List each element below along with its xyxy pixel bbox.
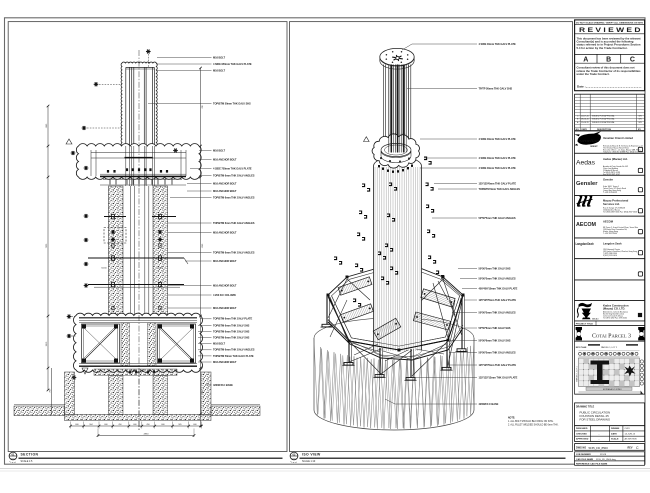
svg-text:FOR STEEL DRAWING: FOR STEEL DRAWING <box>580 418 611 422</box>
svg-text:1. ALL BOLT SHOULD BE FIXING O: 1. ALL BOLT SHOULD BE FIXING ON SITE. <box>508 420 554 423</box>
svg-text:APPROVED: APPROVED <box>576 438 589 441</box>
svg-text:4 SIDE 40mm THK GALV PLATE: 4 SIDE 40mm THK GALV PLATE <box>479 156 517 160</box>
svg-text:C: C <box>636 446 639 450</box>
svg-text:50x50: 50x50 <box>101 268 107 270</box>
svg-text:T +852 3922 9000: T +852 3922 9000 <box>603 233 617 235</box>
svg-text:TOP/BTM 6mm THK GALV SHS: TOP/BTM 6mm THK GALV SHS <box>213 336 250 340</box>
svg-text:2. ALL FILLET WELDED SHOULD BE: 2. ALL FILLET WELDED SHOULD BE 6mm THK. <box>508 424 559 427</box>
svg-text:TP/TP 50mm THK GALV SHS: TP/TP 50mm THK GALV SHS <box>479 86 513 90</box>
svg-text:AECOM: AECOM <box>603 220 614 224</box>
svg-text:5502: 5502 <box>292 458 298 460</box>
svg-text:15-06-15: 15-06-15 <box>581 122 589 124</box>
svg-text:TOP/BTM 6mm THK GALV SHS: TOP/BTM 6mm THK GALV SHS <box>213 329 250 333</box>
svg-text:Gensler: Gensler <box>576 181 598 187</box>
svg-text:10-07-15: 10-07-15 <box>581 116 589 118</box>
svg-text:50*50*6mm THK GALV SHS: 50*50*6mm THK GALV SHS <box>479 338 511 342</box>
svg-text:TOP/BTM 6mm THK GALV ANGLES: TOP/BTM 6mm THK GALV ANGLES <box>213 221 255 225</box>
svg-text:5.4 for action by the Trade Co: 5.4 for action by the Trade Contractor. <box>577 47 628 50</box>
svg-text:under the Trade Contract.: under the Trade Contract. <box>577 73 610 76</box>
svg-text:TOP/BTM 50mm THK GALV PLATE: TOP/BTM 50mm THK GALV PLATE <box>213 354 254 358</box>
svg-text:4 SIDE 40mm THK GALV PLATE: 4 SIDE 40mm THK GALV PLATE <box>479 166 517 170</box>
svg-text:LangdonSeah: LangdonSeah <box>576 242 594 246</box>
svg-text:ESTRADA DO ISTMO: ESTRADA DO ISTMO <box>603 388 622 391</box>
svg-text:600: 600 <box>193 424 196 426</box>
svg-text:ISSUED FOR APPROVAL: ISSUED FOR APPROVAL <box>592 115 615 118</box>
svg-text:TOP/BTM 50mm THK GALV SHS: TOP/BTM 50mm THK GALV SHS <box>213 101 251 105</box>
svg-text:964: 964 <box>89 424 92 426</box>
svg-text:DESIGNED: DESIGNED <box>576 428 588 430</box>
svg-text:4 203 R.C COLUMN: 4 203 R.C COLUMN <box>213 293 236 297</box>
svg-text:(Macau) CO. LTD.: (Macau) CO. LTD. <box>603 307 625 311</box>
svg-text:PROJECT TITLE: PROJECT TITLE <box>576 324 594 326</box>
svg-text:Aedas (Macau) Ltd.: Aedas (Macau) Ltd. <box>603 157 628 161</box>
svg-text:4 SIDE 950mm THK GALV PLATE: 4 SIDE 950mm THK GALV PLATE <box>213 62 252 66</box>
svg-text:Tel: 2875 3282 Fax: 2875 326: Tel: 2875 3282 Fax: 2875 3262 <box>603 318 627 320</box>
svg-text:ISSUED FOR APPROVAL: ISSUED FOR APPROVAL <box>592 118 615 121</box>
svg-text:DO NOT SCALE DRAWING. VERIFY A: DO NOT SCALE DRAWING. VERIFY ALL DIMENSI… <box>576 21 644 24</box>
svg-text:SCALE 1:5: SCALE 1:5 <box>21 460 33 463</box>
svg-text:PARCEL 1, LOT 1: PARCEL 1, LOT 1 <box>576 366 579 381</box>
svg-text:600: 600 <box>133 424 136 426</box>
svg-text:C: C <box>630 57 635 64</box>
svg-text:KEY PLAN: KEY PLAN <box>576 346 587 349</box>
svg-text:relieve the Trade Contractor o: relieve the Trade Contractor of its resp… <box>577 70 642 73</box>
svg-text:450: 450 <box>146 424 149 426</box>
svg-text:MACAU: MACAU <box>592 317 599 320</box>
svg-text:50*50*6mm THK GALV SHS: 50*50*6mm THK GALV SHS <box>479 326 511 330</box>
svg-text:2850: 2850 <box>144 433 150 435</box>
svg-text:600: 600 <box>75 424 78 426</box>
svg-text:SECTION: SECTION <box>21 452 39 456</box>
svg-text:50*50*5mm THK GALV SHS: 50*50*5mm THK GALV SHS <box>479 266 511 270</box>
svg-text:This document has been reviewe: This document has been reviewed by the r… <box>577 37 641 40</box>
svg-text:Consultant review of this docu: Consultant review of this document does … <box>577 67 635 70</box>
svg-text:CAD FILE NAME: CAD FILE NAME <box>576 458 594 461</box>
svg-text:DATE: DATE <box>611 432 617 435</box>
svg-text:AS SHOWN: AS SHOWN <box>625 438 637 441</box>
svg-text:REV: REV <box>628 447 633 450</box>
svg-text:M16 ANCHOR BOLT: M16 ANCHOR BOLT <box>213 306 237 310</box>
svg-text:M16 BOLT: M16 BOLT <box>213 148 225 152</box>
svg-text:965: 965 <box>178 424 181 426</box>
svg-text:M16 BOLT: M16 BOLT <box>213 342 225 346</box>
svg-text:4200Ø R.C BASE: 4200Ø R.C BASE <box>479 402 499 406</box>
svg-text:M16 ANCHOR BOLT: M16 ANCHOR BOLT <box>213 181 237 185</box>
svg-text:125*125*6mm THK GALV PLATE: 125*125*6mm THK GALV PLATE <box>479 298 517 302</box>
svg-text:50*50*5mm THK GALV ANGLES: 50*50*5mm THK GALV ANGLES <box>479 216 516 220</box>
svg-text:F (852) 2576 0416: F (852) 2576 0416 <box>603 255 617 257</box>
svg-text:TOP/BTM 6mm THK GALV ANGLES: TOP/BTM 6mm THK GALV ANGLES <box>213 250 255 254</box>
svg-text:4 SIDE 40mm THK GALV PLATE: 4 SIDE 40mm THK GALV PLATE <box>479 137 517 141</box>
svg-text:125*125*6mm THK GALV PLATE: 125*125*6mm THK GALV PLATE <box>479 181 517 185</box>
svg-text:50*50*5mm THK GALV ANGLES: 50*50*5mm THK GALV ANGLES <box>479 350 516 354</box>
svg-text:CHECKED: CHECKED <box>576 433 587 435</box>
svg-text:A: A <box>583 57 588 64</box>
svg-text:ORIENT: ORIENT <box>590 146 598 148</box>
svg-text:132*132*12mm THK GALV PLATE: 132*132*12mm THK GALV PLATE <box>479 375 518 379</box>
svg-text:28-06-15: 28-06-15 <box>581 119 589 121</box>
svg-text:TOP/BTM 6mm THK GALV PLATE: TOP/BTM 6mm THK GALV PLATE <box>213 317 252 321</box>
svg-text:NOTE:: NOTE: <box>508 418 515 420</box>
svg-text:125*125*6mm THK GALV PLATE: 125*125*6mm THK GALV PLATE <box>479 363 517 367</box>
svg-text:M16 ANCHOR BOLT: M16 ANCHOR BOLT <box>213 189 237 193</box>
svg-text:Fax (853) 2871 6107: Fax (853) 2871 6107 <box>603 174 620 176</box>
svg-text:M16 ANCHOR BOLT: M16 ANCHOR BOLT <box>213 259 237 263</box>
svg-text:Langdon Seah: Langdon Seah <box>603 241 622 245</box>
svg-text:TOP/BTM 6mm THK GALV ANGLES: TOP/BTM 6mm THK GALV ANGLES <box>479 187 521 191</box>
svg-text:DRAWING TITLE: DRAWING TITLE <box>576 405 595 408</box>
svg-text:ISO VIEW: ISO VIEW <box>302 452 321 456</box>
svg-text:4 SIDE 40mm THK GALV PLATE: 4 SIDE 40mm THK GALV PLATE <box>479 42 517 46</box>
svg-text:status referred to in Projec: status referred to in Project Procedures… <box>577 44 642 47</box>
svg-text:TOP/BTM 6mm THK GALV SHS: TOP/BTM 6mm THK GALV SHS <box>213 323 250 327</box>
svg-text:M16 ANCHOR BOLT: M16 ANCHOR BOLT <box>213 157 237 161</box>
svg-text:REFERENCE CAD FILE NAME: REFERENCE CAD FILE NAME <box>576 462 608 465</box>
svg-text:M16 BOLT: M16 BOLT <box>213 68 225 72</box>
svg-text:PARCEL 1, LOT 2: PARCEL 1, LOT 2 <box>601 346 618 349</box>
svg-text:R E V I E W E D: R E V I E W E D <box>579 27 641 34</box>
svg-text:CWO: CWO <box>625 428 631 430</box>
svg-text:AECOM: AECOM <box>576 222 596 228</box>
svg-text:DWG NO: DWG NO <box>576 447 586 450</box>
svg-text:50*50*5mm THK GALV ANGLES: 50*50*5mm THK GALV ANGLES <box>479 310 516 314</box>
svg-text:14-JUN-15: 14-JUN-15 <box>625 433 636 435</box>
svg-text:50x50: 50x50 <box>157 268 163 270</box>
svg-text:ISSUED FOR APPROVAL: ISSUED FOR APPROVAL <box>592 121 615 124</box>
svg-text:TOP/BTM 6mm THK GALV ANGLES: TOP/BTM 6mm THK GALV ANGLES <box>213 195 255 199</box>
svg-text:T +852.2576.8555: T +852.2576.8555 <box>603 192 617 194</box>
svg-text:4 SIDE 750mm THK GALV PLATE: 4 SIDE 750mm THK GALV PLATE <box>213 166 252 170</box>
svg-text:B: B <box>606 57 611 64</box>
svg-text:M16 BOLT: M16 BOLT <box>213 55 225 59</box>
svg-text:Tel: (853) 2837 5656 Fax: (8: Tel: (853) 2837 5656 Fax: (853) 2837 562… <box>603 212 637 214</box>
svg-text:Aedas: Aedas <box>576 159 595 166</box>
svg-text:Date :: Date : <box>577 84 586 88</box>
svg-text:Consultant(s) and is accorded: Consultant(s) and is accorded the follow… <box>577 41 635 44</box>
svg-text:venetian: venetian <box>580 138 600 143</box>
svg-text:4200Ø R.C BASE: 4200Ø R.C BASE <box>213 383 233 387</box>
svg-text:M16 ANCHOR BOLT: M16 ANCHOR BOLT <box>213 283 237 287</box>
svg-text:SCALE 1:10: SCALE 1:10 <box>302 460 316 463</box>
svg-text:400*400*10mm THK GALV PLATE: 400*400*10mm THK GALV PLATE <box>479 286 518 290</box>
svg-text:5502: 5502 <box>11 458 17 460</box>
svg-text:SCALE: SCALE <box>611 438 619 441</box>
svg-text:600: 600 <box>104 424 107 426</box>
svg-text:Services Ltd.: Services Ltd. <box>603 202 620 206</box>
svg-text:Venetian Orient Limited: Venetian Orient Limited <box>603 136 633 140</box>
svg-text:600: 600 <box>161 424 164 426</box>
svg-text:TOP/BTM 6mm THK GALV ANGLES: TOP/BTM 6mm THK GALV ANGLES <box>213 348 255 352</box>
svg-text:5155_FD_8500.dwg: 5155_FD_8500.dwg <box>596 459 616 461</box>
svg-text:50*50*5mm THK GALV ANGLES: 50*50*5mm THK GALV ANGLES <box>479 276 516 280</box>
svg-text:M16 ANCHOR BOLT: M16 ANCHOR BOLT <box>213 360 237 364</box>
svg-text:Telephone: (853) 81 118888: Telephone: (853) 81 118888 Fax: (853) 81… <box>603 151 643 153</box>
svg-text:M16 ANCHOR BOLT: M16 ANCHOR BOLT <box>213 230 237 234</box>
svg-text:TOP/BTM 6mm THK GALV ANGLES: TOP/BTM 6mm THK GALV ANGLES <box>213 173 255 177</box>
svg-text:Gensler: Gensler <box>603 177 613 181</box>
svg-text:DRAWN: DRAWN <box>611 427 620 430</box>
svg-text:450: 450 <box>118 424 121 426</box>
svg-text:5155_FD_8500: 5155_FD_8500 <box>589 446 609 450</box>
